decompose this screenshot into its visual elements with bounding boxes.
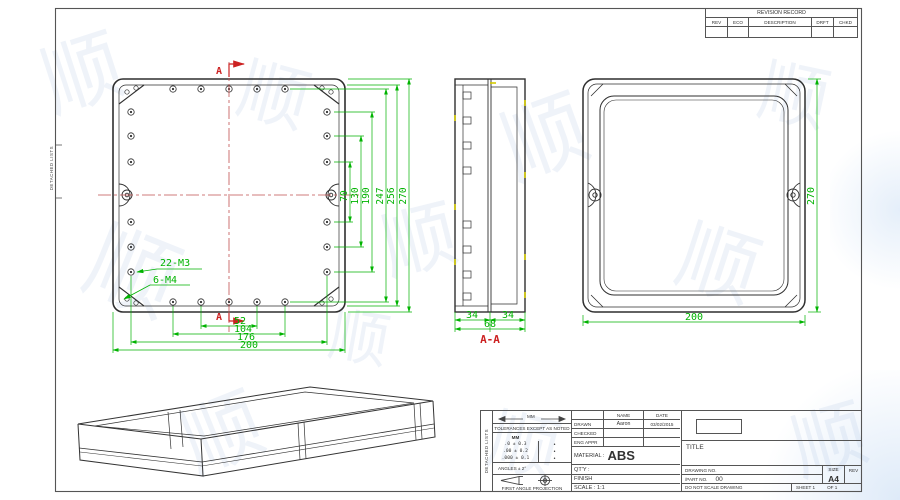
svg-text:190: 190 xyxy=(361,187,372,204)
name-header: NAME xyxy=(604,411,644,420)
title-label: TITLE xyxy=(686,444,704,451)
title-block-strip: DETACHED LISTS xyxy=(481,411,493,491)
svg-text:34: 34 xyxy=(502,310,514,321)
part-no-row: /PART NO. 00 xyxy=(682,475,822,484)
back-view: 270 200 xyxy=(583,79,821,326)
scale-row: SCALE : 1:1 xyxy=(572,484,680,491)
title-block: DETACHED LISTS MM TOLERANCES EXCEPT AS N… xyxy=(480,410,862,492)
rev-box: REV xyxy=(845,466,861,474)
projection-row: FIRST ANGLE PROJECTION xyxy=(493,475,571,491)
revision-col-description: DESCRIPTION xyxy=(749,18,812,27)
tolerance-mark: • xyxy=(538,455,570,462)
svg-text:270: 270 xyxy=(398,187,409,204)
front-right-dim-labels: 70 130 190 247 256 270 xyxy=(339,187,409,204)
revision-empty-cell xyxy=(728,27,749,37)
angles-tolerance: ANGLES ± 2° xyxy=(493,463,571,475)
svg-text:256: 256 xyxy=(386,187,397,204)
front-view: A A 22-M3 6-M4 52 104 xyxy=(98,62,412,353)
title-area: TITLE xyxy=(682,441,861,466)
revision-table-title: REVISION RECORD xyxy=(706,9,857,18)
tolerance-row: .000 ± 0.1 xyxy=(493,455,538,462)
section-label-top: A xyxy=(216,66,222,77)
tolerance-mark: • xyxy=(538,441,570,448)
svg-text:34: 34 xyxy=(466,310,478,321)
svg-text:200: 200 xyxy=(240,340,258,351)
back-dim-width: 200 xyxy=(685,312,703,323)
tolerance-heading: TOLERANCES EXCEPT AS NOTED xyxy=(493,424,571,433)
section-view: 34 34 68 A-A xyxy=(455,79,525,346)
size-box: SIZE A4 xyxy=(822,466,845,484)
do-not-scale-note: DO NOT SCALE DRAWING xyxy=(682,484,792,491)
highlight-ticks xyxy=(455,83,525,298)
projection-label: FIRST ANGLE PROJECTION xyxy=(493,485,571,491)
back-side-tabs xyxy=(588,183,800,207)
drawing-no-area: DRAWING NO. /PART NO. 00 SIZE A4 REV xyxy=(682,466,861,484)
frame-strip-label: DETACHED LISTS xyxy=(49,146,59,198)
tolerance-unit-header: MM xyxy=(493,433,538,441)
thread-note-m3: 22-M3 xyxy=(160,258,190,269)
svg-text:70: 70 xyxy=(339,190,350,202)
size-value: A4 xyxy=(823,473,844,484)
revision-table: REVISION RECORD REV ECO DESCRIPTION DRFT… xyxy=(705,8,858,38)
material-row: MATERIAL : ABS xyxy=(572,447,680,465)
eng-appr-label: ENG APPR xyxy=(572,438,604,447)
finish-row: FINISH xyxy=(572,475,680,484)
part-no-value: 00 xyxy=(715,476,722,483)
section-cut-marks xyxy=(229,64,244,321)
front-bottom-dim-labels: 52 104 176 200 xyxy=(234,316,258,351)
isometric-view xyxy=(78,387,435,476)
screw-bosses xyxy=(463,92,471,300)
revision-empty-cell xyxy=(749,27,812,37)
sheet-label: SHEET 1 xyxy=(796,485,815,490)
material-label: MATERIAL : xyxy=(574,453,604,459)
section-view-label: A-A xyxy=(480,333,500,346)
svg-text:130: 130 xyxy=(350,187,361,204)
drawn-name: Aaron xyxy=(604,420,644,429)
tolerance-mark: • xyxy=(538,448,570,455)
back-dim-height: 270 xyxy=(806,187,817,205)
revision-col-chkd: CHKD xyxy=(834,18,857,27)
revision-col-rev: REV xyxy=(706,18,728,27)
tolerance-row: .00 ± 0.2 xyxy=(493,448,538,455)
material-value: ABS xyxy=(607,448,634,463)
thread-note-m4: 6-M4 xyxy=(153,275,177,286)
drawn-label: DRAWN xyxy=(572,420,604,429)
corner-marks xyxy=(591,84,797,307)
section-label-bottom: A xyxy=(216,312,222,323)
revision-empty-cell xyxy=(706,27,728,37)
drawn-date: 03/02/2015 xyxy=(644,420,680,429)
title-id-block: TITLE DRAWING NO. /PART NO. 00 SIZE A4 R… xyxy=(681,411,861,491)
size-label: SIZE xyxy=(823,466,844,473)
drawing-sheet: 顺 顺 顺 顺 顺 顺 顺 顺 顺 顺 顺 xyxy=(0,0,900,500)
tolerance-table: MM .0 ± 0.3 .00 ± 0.2 .000 ± 0.1 • • • xyxy=(493,433,571,463)
units-label: MM xyxy=(527,414,535,419)
approval-block: NAME DATE DRAWN Aaron 03/02/2015 CHECKED… xyxy=(571,411,681,491)
tolerance-row: .0 ± 0.3 xyxy=(493,441,538,448)
revision-col-eco: ECO xyxy=(728,18,749,27)
revision-empty-cell xyxy=(812,27,834,37)
part-no-label: /PART NO. xyxy=(685,477,707,482)
qty-row: QT'Y : xyxy=(572,465,680,475)
revision-col-drft: DRFT xyxy=(812,18,834,27)
sheet-of-label: OF 1 xyxy=(827,485,837,490)
date-header: DATE xyxy=(644,411,680,420)
logo-box xyxy=(696,419,742,434)
checked-label: CHECKED xyxy=(572,429,604,438)
units-row: MM xyxy=(493,411,571,424)
drawing-no-label: DRAWING NO. xyxy=(682,466,822,475)
svg-text:68: 68 xyxy=(484,319,496,330)
svg-text:247: 247 xyxy=(375,187,386,204)
footer-row: DO NOT SCALE DRAWING SHEET 1 OF 1 xyxy=(682,484,861,491)
